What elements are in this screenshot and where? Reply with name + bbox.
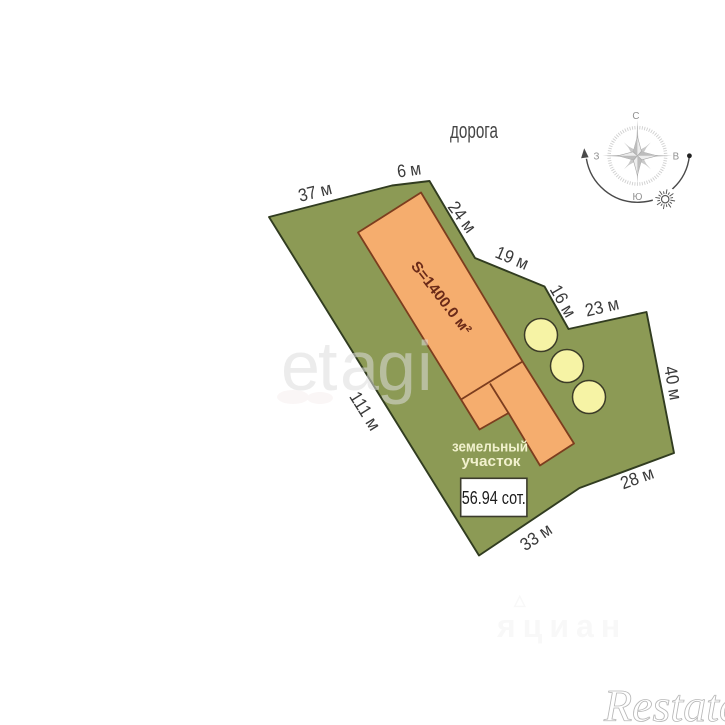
svg-text:дорога: дорога bbox=[450, 118, 499, 143]
svg-text:яциан: яциан bbox=[496, 608, 627, 644]
svg-text:40 м: 40 м bbox=[660, 365, 686, 402]
svg-text:t: t bbox=[318, 327, 337, 405]
svg-text:участок: участок bbox=[462, 453, 521, 470]
svg-text:В: В bbox=[673, 151, 680, 162]
svg-text:Restate: Restate bbox=[603, 680, 725, 725]
svg-text:a: a bbox=[340, 327, 379, 405]
svg-text:i: i bbox=[417, 327, 433, 405]
svg-text:З: З bbox=[593, 151, 599, 162]
svg-text:△: △ bbox=[513, 592, 526, 609]
svg-text:23 м: 23 м bbox=[583, 293, 621, 320]
svg-text:e: e bbox=[281, 327, 320, 405]
svg-text:56.94 сот.: 56.94 сот. bbox=[462, 487, 526, 508]
svg-text:g: g bbox=[377, 327, 416, 405]
svg-text:6 м: 6 м bbox=[396, 158, 423, 181]
svg-text:С: С bbox=[632, 111, 639, 122]
svg-text:Ю: Ю bbox=[632, 192, 642, 203]
